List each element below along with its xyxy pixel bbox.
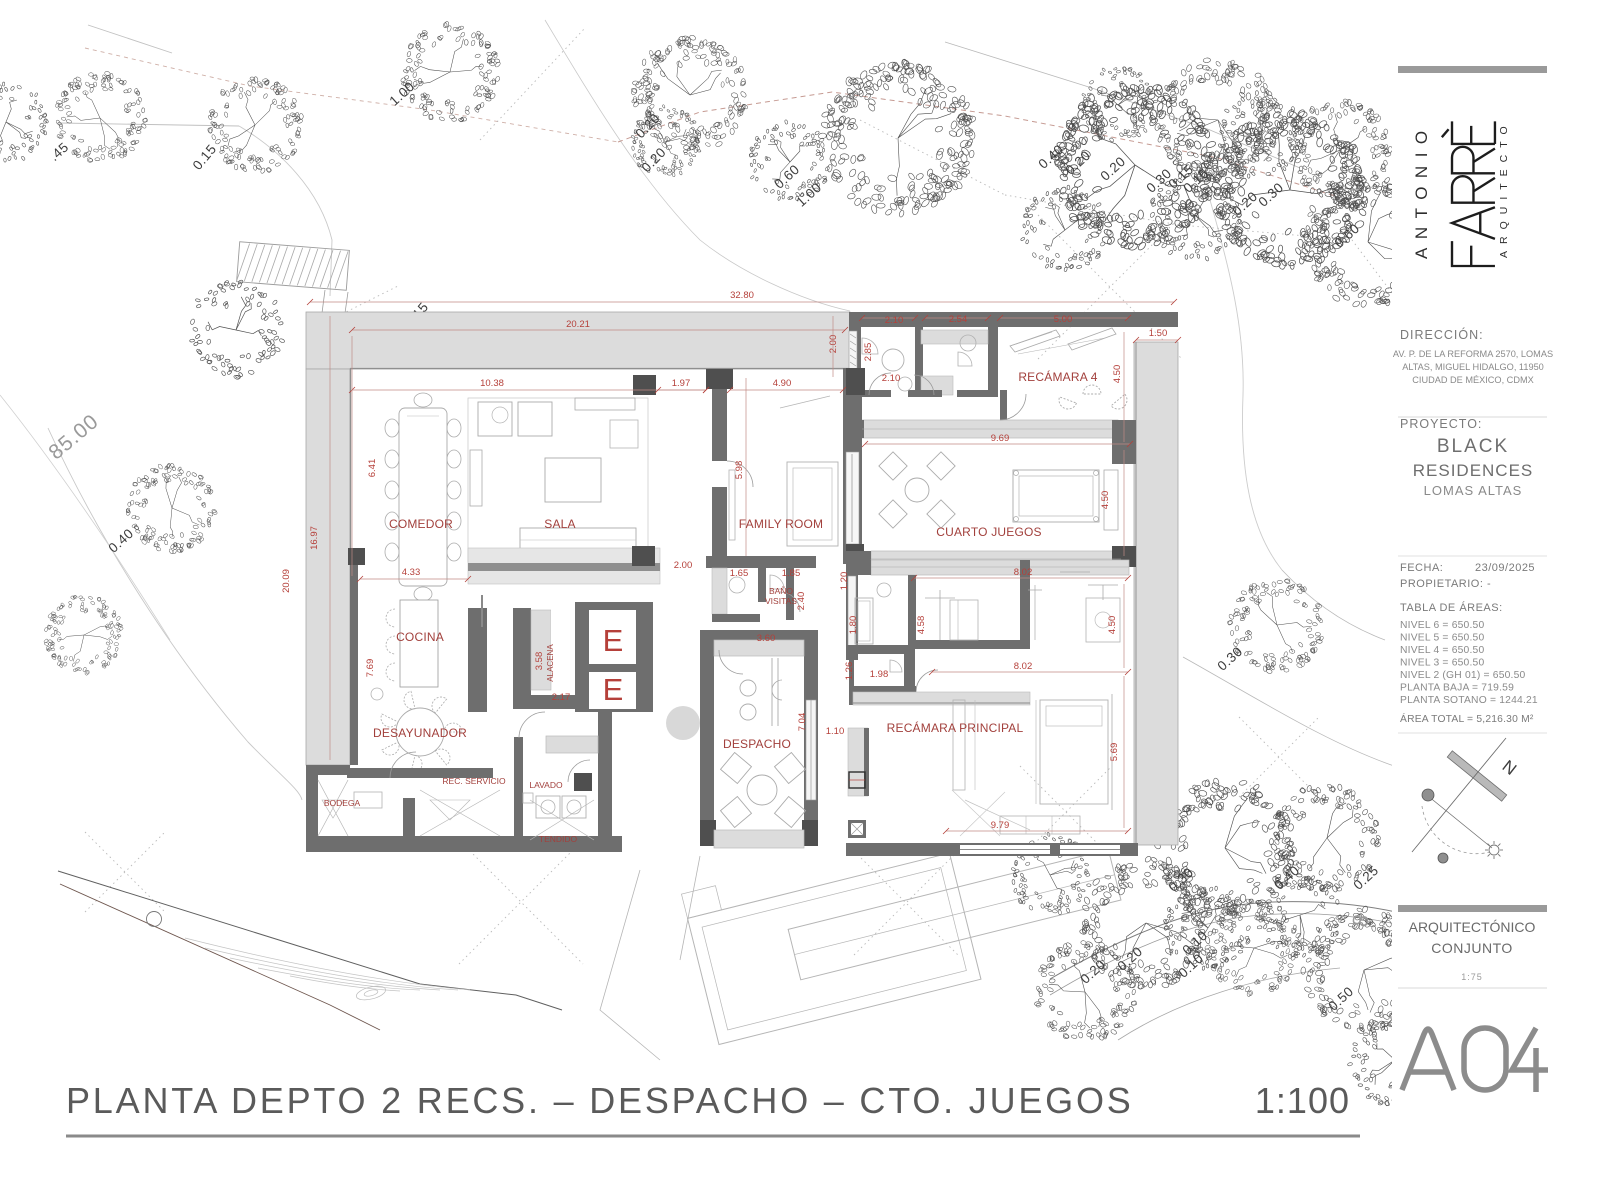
svg-text:COMEDOR: COMEDOR [389, 517, 453, 531]
svg-text:0.25: 0.25 [1350, 863, 1381, 893]
svg-text:DESAYUNADOR: DESAYUNADOR [373, 726, 467, 740]
svg-text:1.85: 1.85 [782, 568, 801, 579]
svg-text:ÁREA TOTAL = 5,216.30 M²: ÁREA TOTAL = 5,216.30 M² [1400, 712, 1534, 725]
svg-text:SALA: SALA [544, 517, 576, 531]
svg-text:5.00: 5.00 [1054, 314, 1073, 325]
svg-text:RESIDENCES: RESIDENCES [1413, 461, 1534, 480]
svg-text:1.97: 1.97 [672, 378, 691, 389]
svg-text:1.20: 1.20 [839, 572, 850, 591]
svg-text:0.10: 0.10 [1175, 951, 1206, 981]
svg-text:.45: .45 [46, 139, 71, 164]
svg-text:10.38: 10.38 [480, 378, 504, 389]
svg-text:2.40: 2.40 [796, 592, 807, 611]
svg-text:0.30: 0.30 [1214, 644, 1245, 674]
svg-text:0.20: 0.20 [1097, 154, 1128, 184]
svg-text:4.90: 4.90 [773, 378, 792, 389]
svg-text:7.04: 7.04 [797, 713, 808, 732]
svg-text:0.60: 0.60 [771, 162, 802, 192]
svg-text:NIVEL 2 (GH 01) = 650.50: NIVEL 2 (GH 01) = 650.50 [1400, 670, 1526, 681]
svg-text:0.40: 0.40 [105, 526, 136, 556]
svg-text:RECÁMARA 4: RECÁMARA 4 [1018, 369, 1097, 384]
svg-text:5.69: 5.69 [1109, 743, 1120, 762]
svg-text:DIRECCIÓN:: DIRECCIÓN: [1400, 327, 1484, 342]
svg-text:TENDIDO: TENDIDO [539, 834, 578, 844]
svg-text:20.21: 20.21 [566, 319, 590, 330]
svg-text:CUARTO JUEGOS: CUARTO JUEGOS [936, 525, 1042, 539]
svg-text:NIVEL 3 = 650.50: NIVEL 3 = 650.50 [1400, 658, 1484, 669]
svg-text:1.26: 1.26 [844, 662, 855, 681]
svg-text:2.00: 2.00 [828, 335, 839, 354]
svg-text:NIVEL 5 = 650.50: NIVEL 5 = 650.50 [1400, 633, 1484, 644]
svg-text:AV. P. DE LA REFORMA 2570, LOM: AV. P. DE LA REFORMA 2570, LOMAS [1393, 349, 1553, 359]
svg-text:1:75: 1:75 [1461, 972, 1483, 982]
svg-text:0.60: 0.60 [1331, 221, 1362, 251]
svg-text:8.02: 8.02 [1014, 661, 1033, 672]
svg-text:DESPACHO: DESPACHO [723, 737, 791, 751]
svg-text:E: E [603, 623, 624, 658]
svg-text:1.00: 1.00 [386, 79, 417, 109]
svg-text:1.98: 1.98 [870, 669, 889, 680]
svg-text:9.69: 9.69 [991, 433, 1010, 444]
svg-text:85.00: 85.00 [44, 410, 103, 465]
svg-text:BLACK: BLACK [1437, 436, 1509, 457]
svg-text:16.97: 16.97 [309, 526, 320, 550]
svg-text:RECÁMARA PRINCIPAL: RECÁMARA PRINCIPAL [887, 720, 1024, 735]
svg-text:LAVADO: LAVADO [529, 780, 563, 790]
svg-text:BAÑO: BAÑO [769, 586, 793, 596]
svg-text:FAMILY ROOM: FAMILY ROOM [739, 517, 823, 531]
svg-text:3.58: 3.58 [534, 652, 545, 671]
svg-text:PLANTA DEPTO 2 RECS. – DESPACH: PLANTA DEPTO 2 RECS. – DESPACHO – CTO. J… [66, 1080, 1134, 1121]
svg-text:1.00: 1.00 [793, 180, 824, 210]
svg-text:PLANTA BAJA = 719.59: PLANTA BAJA = 719.59 [1400, 683, 1514, 694]
svg-text:LOMAS ALTAS: LOMAS ALTAS [1424, 483, 1523, 498]
svg-text:9.79: 9.79 [991, 820, 1010, 831]
svg-text:2.17: 2.17 [552, 692, 571, 703]
svg-text:8: 8 [1347, 912, 1374, 928]
svg-text:NIVEL 6 = 650.50: NIVEL 6 = 650.50 [1400, 620, 1484, 631]
svg-text:VISITAS: VISITAS [765, 596, 797, 606]
svg-text:3.60: 3.60 [757, 633, 776, 644]
svg-text:1.10: 1.10 [826, 726, 845, 737]
svg-text:1:100: 1:100 [1255, 1080, 1350, 1121]
svg-text:8.02: 8.02 [1014, 567, 1033, 578]
svg-text:2.54: 2.54 [949, 314, 968, 325]
svg-text:ALACENA: ALACENA [546, 644, 555, 682]
svg-text:CIUDAD DE MÉXICO, CDMX: CIUDAD DE MÉXICO, CDMX [1412, 375, 1534, 385]
svg-text:0.20: 0.20 [639, 144, 669, 175]
svg-text:4.50: 4.50 [1100, 491, 1111, 510]
svg-text:REC. SERVICIO: REC. SERVICIO [442, 776, 506, 786]
svg-text:FECHA:: FECHA: [1400, 562, 1443, 574]
svg-text:2.10: 2.10 [882, 373, 901, 384]
svg-text:4.50: 4.50 [1107, 616, 1118, 635]
svg-text:4.50: 4.50 [1112, 365, 1123, 384]
svg-text:PROPIETARIO: -: PROPIETARIO: - [1400, 578, 1491, 590]
svg-text:ANTONIO: ANTONIO [1412, 122, 1431, 259]
svg-text:0.50: 0.50 [1325, 984, 1356, 1014]
svg-text:0.30: 0.30 [1255, 180, 1286, 210]
svg-text:ALTAS, MIGUEL HIDALGO, 11950: ALTAS, MIGUEL HIDALGO, 11950 [1402, 362, 1544, 372]
svg-text:7.69: 7.69 [365, 659, 376, 678]
svg-text:2.00: 2.00 [674, 560, 693, 571]
svg-text:2.10: 2.10 [885, 315, 904, 326]
svg-text:NIVEL 4 = 650.50: NIVEL 4 = 650.50 [1400, 645, 1484, 656]
svg-text:1.50: 1.50 [1149, 328, 1168, 339]
svg-text:PLANTA SOTANO = 1244.21: PLANTA SOTANO = 1244.21 [1400, 695, 1538, 706]
svg-text:E: E [603, 672, 624, 707]
svg-text:PROYECTO:: PROYECTO: [1400, 417, 1482, 431]
svg-text:2.85: 2.85 [863, 343, 874, 362]
svg-text:4.58: 4.58 [916, 616, 927, 635]
svg-text:5.98: 5.98 [734, 461, 745, 480]
svg-text:COCINA: COCINA [396, 630, 444, 644]
svg-text:23/09/2025: 23/09/2025 [1475, 562, 1535, 574]
svg-text:0.15: 0.15 [190, 141, 220, 172]
svg-text:TABLA DE ÁREAS:: TABLA DE ÁREAS: [1400, 601, 1503, 614]
svg-text:1.65: 1.65 [730, 568, 749, 579]
svg-text:ARQUITECTO: ARQUITECTO [1498, 119, 1510, 258]
svg-text:20.09: 20.09 [281, 569, 292, 593]
svg-text:1.80: 1.80 [848, 616, 859, 635]
svg-text:ARQUITECTÓNICO: ARQUITECTÓNICO [1409, 919, 1536, 935]
svg-text:4.33: 4.33 [402, 567, 421, 578]
svg-text:BODEGA: BODEGA [324, 798, 361, 808]
svg-text:0.20: 0.20 [633, 110, 663, 141]
svg-text:CONJUNTO: CONJUNTO [1431, 940, 1513, 956]
svg-text:32.80: 32.80 [730, 290, 754, 301]
svg-text:6.41: 6.41 [367, 459, 378, 478]
